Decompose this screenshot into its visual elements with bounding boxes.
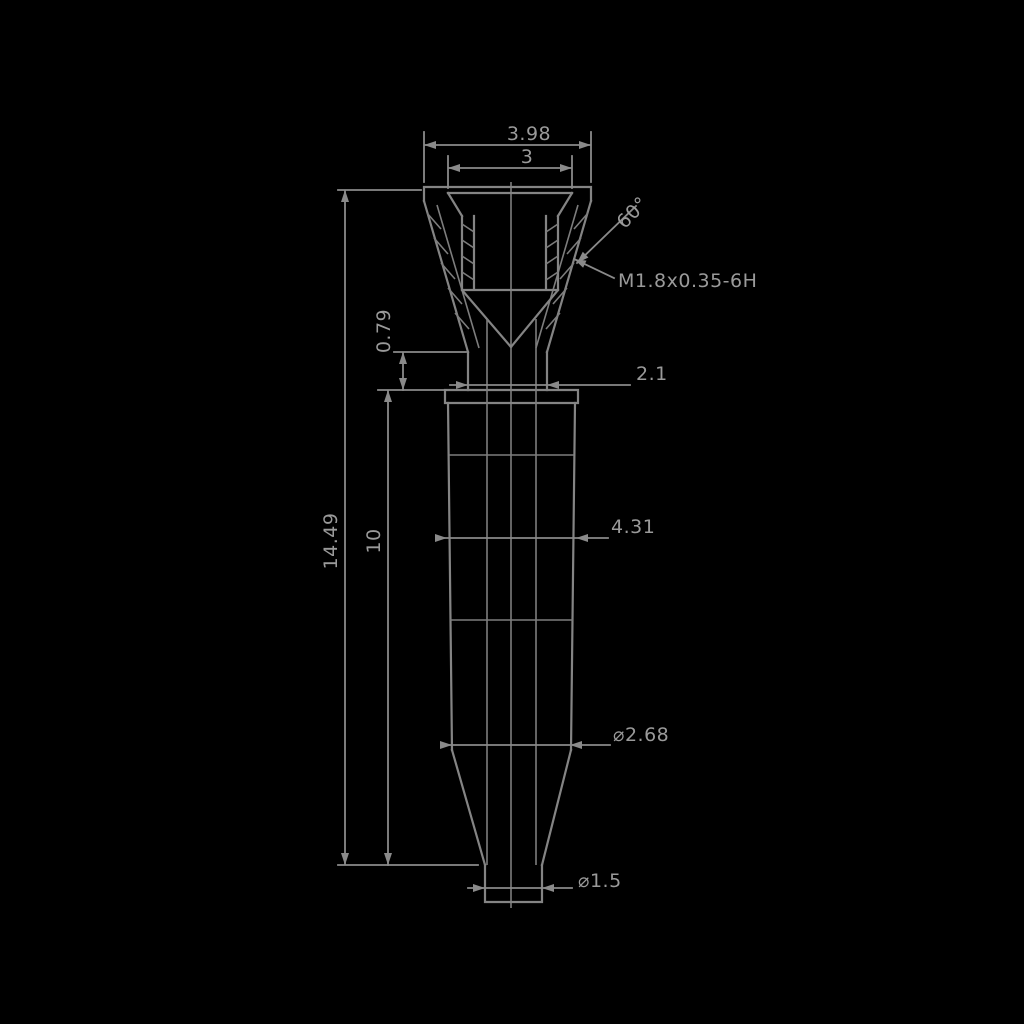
- dim-tip-diameter-label: ⌀1.5: [578, 870, 622, 892]
- part-head: [424, 187, 591, 390]
- dim-cone-angle-label: 60°: [613, 193, 653, 234]
- dim-thread-callout-label: M1.8x0.35-6H: [618, 270, 757, 292]
- dim-lower-diameter: ⌀2.68: [440, 724, 669, 749]
- dim-overall-length: 14.49: [320, 190, 478, 865]
- technical-drawing: 3.98 3 60° M1.8x0.35-6H 14.49 10 0.7: [0, 0, 1024, 1024]
- dim-body-width: 4.31: [435, 516, 655, 542]
- dim-neck-height: 0.79: [373, 309, 466, 390]
- drawing-canvas: 3.98 3 60° M1.8x0.35-6H 14.49 10 0.7: [0, 0, 1024, 1024]
- dim-overall-length-label: 14.49: [320, 513, 342, 570]
- dim-lower-diameter-label: ⌀2.68: [613, 724, 669, 746]
- dim-body-length-label: 10: [363, 528, 385, 553]
- dim-neck-height-label: 0.79: [373, 309, 395, 353]
- dim-neck-width-label: 2.1: [636, 363, 668, 385]
- dim-neck-width: 2.1: [450, 363, 668, 389]
- dim-overall-width-label: 3.98: [507, 123, 551, 145]
- dim-bore-width-label: 3: [521, 146, 534, 168]
- dim-body-width-label: 4.31: [611, 516, 655, 538]
- dim-tip-diameter: ⌀1.5: [468, 870, 622, 892]
- dim-overall-width: 3.98: [424, 123, 591, 182]
- dim-thread-callout: M1.8x0.35-6H: [574, 259, 757, 292]
- dim-cone-angle: 60°: [577, 193, 653, 263]
- dim-bore-width: 3: [448, 146, 572, 188]
- dim-body-length: 10: [363, 390, 446, 865]
